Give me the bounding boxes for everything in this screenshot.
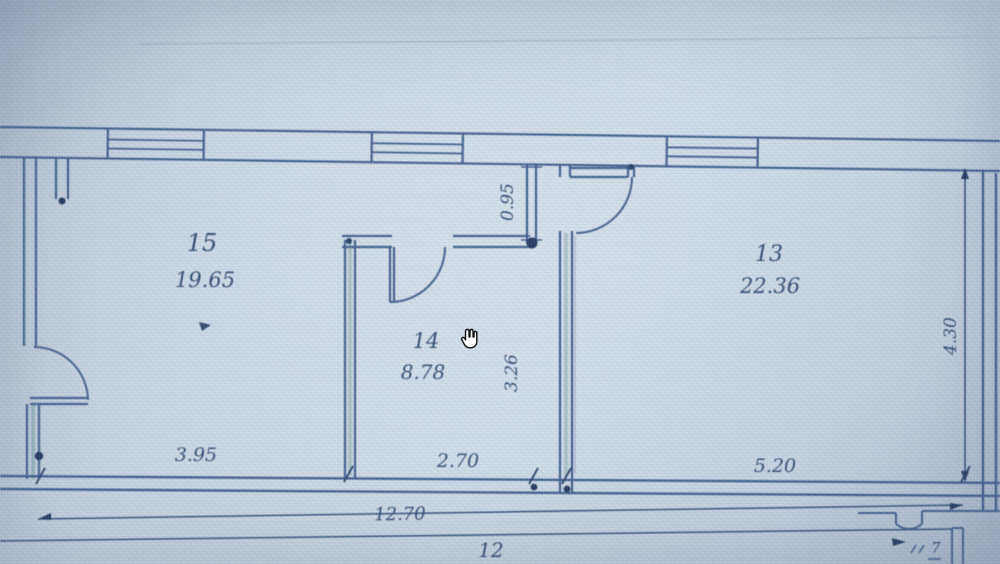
right-wall-lines — [983, 171, 996, 512]
room14-area: 8.78 — [401, 360, 446, 384]
door-14-swing-arc — [390, 247, 445, 302]
room14-top-wall-right — [453, 236, 530, 247]
bottom-wall — [0, 476, 1000, 496]
room13-area: 22.36 — [739, 274, 800, 298]
dim-12-line — [0, 529, 953, 541]
corner-tick-marks — [911, 545, 924, 553]
node-nib-bottom — [527, 238, 538, 249]
frame-faint-line — [140, 37, 1000, 44]
room15-number: 15 — [187, 229, 218, 257]
nib-wall — [521, 164, 542, 243]
room15-area: 19.65 — [175, 268, 235, 292]
node-stub-end — [59, 198, 66, 205]
window-1-panes — [108, 140, 204, 150]
window-1 — [108, 129, 204, 160]
door-13-swing-arc — [576, 177, 632, 233]
right-wall — [983, 171, 996, 512]
top-wall-inner-line — [0, 157, 1000, 171]
dim-1270-arrow-left — [38, 513, 51, 520]
bottom-right-detail — [858, 511, 1000, 564]
u-notch — [858, 511, 1000, 529]
dim-326-label: 3.26 — [502, 354, 522, 392]
window-1-jambs — [108, 129, 204, 160]
dim-12 — [0, 529, 953, 546]
node-bottom-a — [531, 484, 538, 491]
door-13 — [560, 164, 634, 233]
top-wall-outer-line — [0, 127, 1000, 141]
plan-viewer[interactable]: 15 19.65 14 8.78 13 22.36 3.95 2.70 5.20… — [0, 0, 1000, 564]
dim-430-label: 4.30 — [941, 317, 961, 356]
room14-number: 14 — [413, 329, 440, 353]
left-wall-stub — [56, 158, 68, 199]
door-13-leaf — [570, 168, 628, 177]
door-14-leaf — [390, 247, 394, 302]
dim-395-label: 3.95 — [175, 444, 217, 466]
left-wall-upper — [24, 158, 36, 346]
dim-12-arrow — [892, 538, 906, 546]
corner-partial-label: 7 — [931, 539, 941, 557]
dim-095-label: 0.95 — [498, 183, 518, 221]
dim-270-label: 2.70 — [436, 450, 479, 472]
dim-1270-line — [38, 505, 963, 519]
window-3-panes — [667, 147, 758, 157]
hand-cursor-icon — [456, 326, 480, 352]
hand-cursor-path — [462, 329, 477, 347]
node-door13-jamb — [628, 164, 634, 170]
window-2-jambs — [372, 132, 463, 163]
bottom-wall-outer-line — [0, 489, 1000, 496]
window-2 — [372, 132, 463, 163]
window-3 — [667, 136, 758, 167]
dim-12-label: 12 — [478, 538, 503, 562]
corner-bracket — [952, 528, 963, 564]
dim-430 — [961, 168, 969, 482]
top-wall — [0, 127, 1000, 171]
nib-wall-lines — [527, 164, 536, 243]
door-15-swing-arc — [34, 347, 88, 400]
window-3-jambs — [667, 136, 758, 167]
dim-1270 — [38, 503, 963, 520]
left-wall — [24, 158, 88, 479]
room13-number: 13 — [755, 242, 783, 267]
node-left-bottom — [35, 452, 43, 460]
dim-1270-arrow-right — [950, 503, 963, 510]
window-2-panes — [372, 143, 463, 153]
nib-dim-ticks — [521, 167, 542, 240]
wall-14-13 — [560, 231, 575, 492]
dim-520-label: 5.20 — [754, 455, 796, 477]
room15-small-mark — [199, 322, 211, 331]
bottom-wall-inner-line — [0, 476, 1000, 483]
node-room14-corner — [346, 238, 352, 244]
door-15-leaf — [30, 398, 88, 404]
dim-1270-label: 12.70 — [374, 504, 426, 526]
node-bottom-b — [564, 486, 571, 493]
floor-plan-svg: 15 19.65 14 8.78 13 22.36 3.95 2.70 5.20… — [0, 0, 1000, 564]
